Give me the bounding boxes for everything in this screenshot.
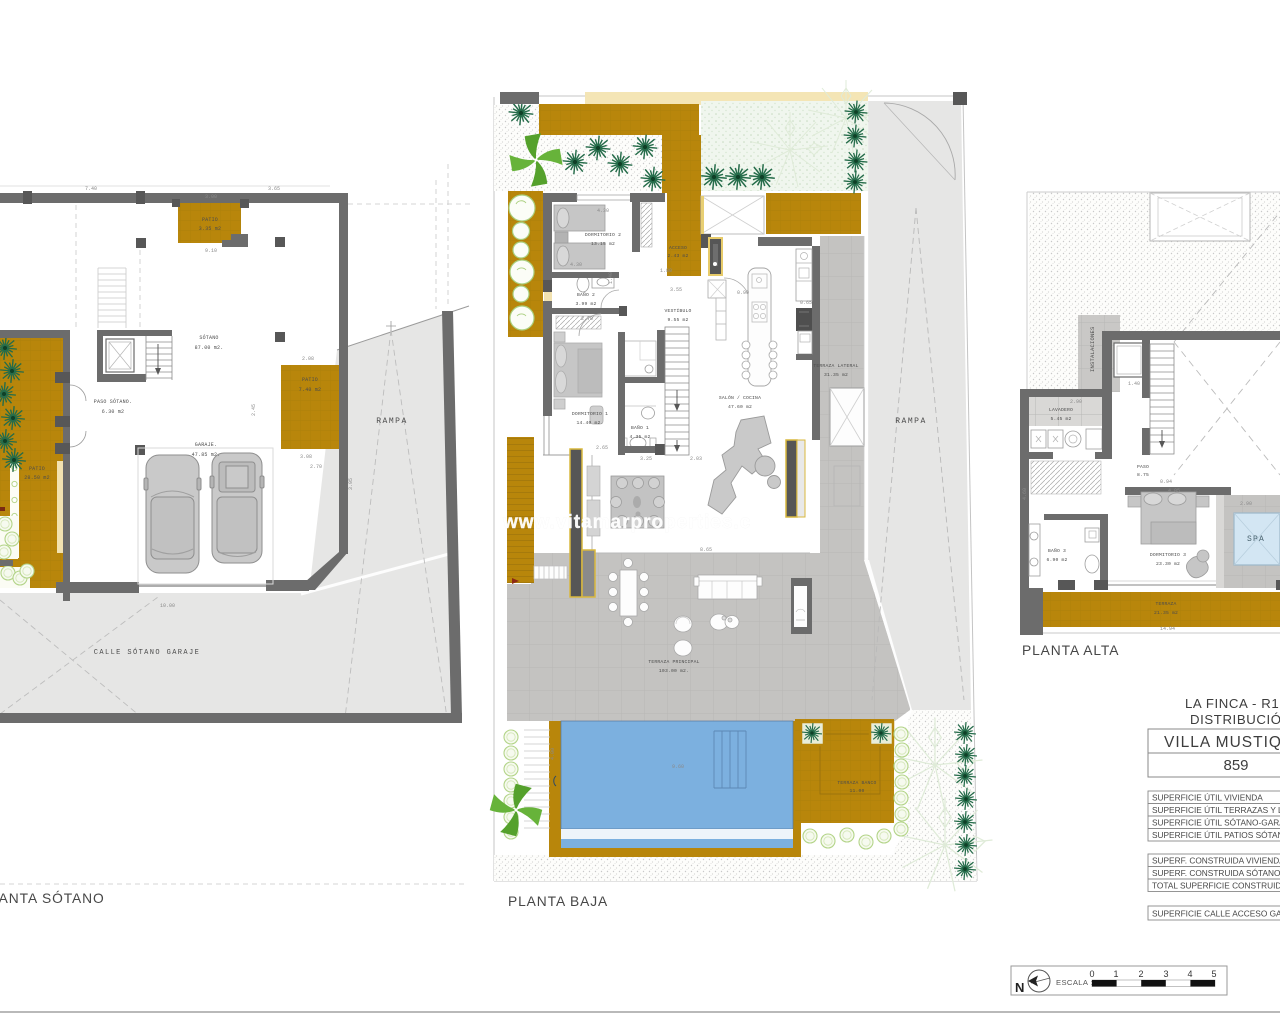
- svg-text:www.vitamarproperties.c: www.vitamarproperties.c: [502, 512, 751, 533]
- svg-text:CALLE SÓTANO GARAJE: CALLE SÓTANO GARAJE: [94, 647, 200, 657]
- svg-text:3.25: 3.25: [640, 456, 652, 462]
- svg-text:2.03: 2.03: [690, 456, 702, 462]
- svg-text:5: 5: [1211, 969, 1216, 979]
- svg-text:3: 3: [1163, 969, 1168, 979]
- svg-text:PASO: PASO: [1137, 464, 1149, 470]
- svg-text:LA FINCA - R1: LA FINCA - R1: [1185, 696, 1279, 711]
- svg-text:4.35 m2: 4.35 m2: [629, 434, 650, 440]
- svg-text:SUPERFICIE ÚTIL PATIOS SÓTANO: SUPERFICIE ÚTIL PATIOS SÓTANO: [1152, 830, 1280, 840]
- svg-text:0.65: 0.65: [800, 300, 812, 306]
- svg-text:RAMPA: RAMPA: [376, 417, 408, 426]
- svg-text:ESCALA :: ESCALA :: [1056, 978, 1093, 987]
- svg-text:6.30 m2: 6.30 m2: [102, 409, 124, 415]
- svg-text:1.40: 1.40: [608, 272, 614, 284]
- svg-text:47.60 m2: 47.60 m2: [728, 404, 752, 410]
- svg-text:SUPERFICIE ÚTIL SÓTANO-GARAJE: SUPERFICIE ÚTIL SÓTANO-GARAJE: [1152, 818, 1280, 828]
- svg-text:28.50 m2: 28.50 m2: [24, 475, 50, 481]
- svg-text:2.70: 2.70: [581, 316, 593, 322]
- svg-text:VESTÍBULO: VESTÍBULO: [664, 307, 691, 314]
- svg-text:5.45 m2: 5.45 m2: [1050, 416, 1071, 422]
- svg-text:GARAJE.: GARAJE.: [195, 442, 217, 448]
- svg-text:2.65: 2.65: [596, 445, 608, 451]
- svg-text:TOTAL SUPERFICIE CONSTRUIDA: TOTAL SUPERFICIE CONSTRUIDA: [1152, 881, 1280, 891]
- svg-text:2.45: 2.45: [251, 404, 257, 416]
- svg-text:RAMPA: RAMPA: [895, 417, 927, 426]
- svg-text:14.40 m2.: 14.40 m2.: [576, 420, 603, 426]
- svg-text:TERRAZA: TERRAZA: [1155, 601, 1176, 607]
- svg-text:21.35 m2: 21.35 m2: [1154, 610, 1178, 616]
- svg-text:0.90: 0.90: [737, 290, 749, 296]
- svg-text:SUPERFICIE ÚTIL TERRAZAS Y LAV: SUPERFICIE ÚTIL TERRAZAS Y LAVADERO: [1152, 805, 1280, 815]
- svg-text:3.00: 3.00: [205, 194, 217, 200]
- svg-text:8.65: 8.65: [700, 547, 712, 553]
- svg-text:BAÑO 1: BAÑO 1: [631, 424, 649, 431]
- svg-text:6.90 m2: 6.90 m2: [1046, 557, 1067, 563]
- svg-text:23.30 m2: 23.30 m2: [1156, 561, 1180, 567]
- svg-text:N: N: [1015, 980, 1024, 995]
- svg-text:ACCESO: ACCESO: [669, 245, 687, 251]
- svg-text:9.10: 9.10: [205, 248, 217, 254]
- svg-text:SUPERFICIE ÚTIL VIVIENDA: SUPERFICIE ÚTIL VIVIENDA: [1152, 793, 1263, 803]
- svg-text:PLANTA ALTA: PLANTA ALTA: [1022, 643, 1119, 658]
- svg-text:10.00: 10.00: [160, 603, 175, 609]
- svg-text:4.30: 4.30: [597, 208, 609, 214]
- svg-text:11.00: 11.00: [849, 788, 864, 794]
- svg-text:PATIO: PATIO: [302, 377, 318, 383]
- svg-text:4.60: 4.60: [1022, 488, 1028, 500]
- svg-text:3.65: 3.65: [268, 186, 280, 192]
- svg-text:TERRAZA PRINCIPAL: TERRAZA PRINCIPAL: [648, 659, 699, 665]
- svg-text:2.43 m2: 2.43 m2: [667, 253, 688, 259]
- svg-text:8.75: 8.75: [1137, 472, 1149, 478]
- svg-text:TERRAZA LATERAL: TERRAZA LATERAL: [813, 363, 858, 369]
- svg-text:PASO SÓTANO.: PASO SÓTANO.: [94, 398, 132, 405]
- svg-text:3.08: 3.08: [300, 454, 312, 460]
- svg-text:BAÑO 2: BAÑO 2: [577, 291, 595, 298]
- svg-text:4: 4: [1187, 969, 1192, 979]
- svg-text:7.40: 7.40: [85, 186, 97, 192]
- svg-text:9.60: 9.60: [672, 764, 684, 770]
- svg-text:2: 2: [1138, 969, 1143, 979]
- svg-text:SUPERFICIE CALLE ACCESO GARAJE: SUPERFICIE CALLE ACCESO GARAJE: [1152, 909, 1280, 919]
- svg-text:9.55 m2: 9.55 m2: [667, 317, 688, 323]
- svg-text:SUPERF. CONSTRUIDA SÓTANO-GARA: SUPERF. CONSTRUIDA SÓTANO-GARAJE: [1152, 868, 1280, 878]
- svg-text:DISTRIBUCIÓN: DISTRIBUCIÓN: [1190, 712, 1280, 727]
- svg-text:2.70: 2.70: [310, 464, 322, 470]
- svg-text:1: 1: [1113, 969, 1118, 979]
- svg-text:4.30: 4.30: [570, 262, 582, 268]
- svg-text:3.99 m2: 3.99 m2: [575, 301, 596, 307]
- svg-text:INSTALACIONES: INSTALACIONES: [1089, 326, 1096, 372]
- svg-text:47.85 m2.: 47.85 m2.: [192, 452, 221, 458]
- svg-text:13.15 m2: 13.15 m2: [591, 241, 615, 247]
- svg-text:PLANTA BAJA: PLANTA BAJA: [508, 894, 608, 909]
- svg-text:LAVADERO: LAVADERO: [1049, 407, 1073, 413]
- svg-text:14.94: 14.94: [1160, 626, 1175, 632]
- svg-text:3.55: 3.55: [670, 287, 682, 293]
- svg-text:PATIO: PATIO: [29, 466, 45, 472]
- svg-text:31.35 m2: 31.35 m2: [824, 372, 848, 378]
- svg-text:87.00 m2.: 87.00 m2.: [195, 345, 224, 351]
- svg-text:4.05: 4.05: [1168, 488, 1180, 494]
- svg-text:0.94: 0.94: [1160, 479, 1172, 485]
- svg-text:SÓTANO: SÓTANO: [199, 334, 218, 341]
- svg-text:VILLA MUSTIQUE: VILLA MUSTIQUE: [1164, 734, 1280, 751]
- svg-text:0: 0: [1089, 969, 1094, 979]
- svg-text:BAÑO 3: BAÑO 3: [1048, 547, 1066, 554]
- svg-text:DORMITORIO 2: DORMITORIO 2: [585, 232, 621, 238]
- svg-text:SUPERF. CONSTRUIDA VIVIENDA: SUPERF. CONSTRUIDA VIVIENDA: [1152, 856, 1280, 866]
- svg-text:859: 859: [1223, 757, 1248, 774]
- svg-text:2.90: 2.90: [1240, 501, 1252, 507]
- svg-text:DORMITORIO 1: DORMITORIO 1: [572, 411, 608, 417]
- svg-text:PLANTA SÓTANO: PLANTA SÓTANO: [0, 890, 105, 906]
- svg-text:SPA: SPA: [1247, 535, 1265, 544]
- svg-text:103.00 m2.: 103.00 m2.: [659, 668, 689, 674]
- svg-text:DORMITORIO 3: DORMITORIO 3: [1150, 552, 1186, 558]
- svg-text:2.90: 2.90: [1070, 399, 1082, 405]
- svg-text:1.80: 1.80: [660, 268, 672, 274]
- svg-text:2.08: 2.08: [302, 356, 314, 362]
- svg-text:4.00: 4.00: [550, 748, 556, 760]
- svg-text:3.95: 3.95: [348, 478, 354, 490]
- svg-text:3.35 m2: 3.35 m2: [199, 226, 221, 232]
- svg-text:7.40 m2: 7.40 m2: [299, 387, 321, 393]
- svg-text:SALÓN / COCINA: SALÓN / COCINA: [719, 394, 761, 401]
- svg-text:TERRAZA BANCO: TERRAZA BANCO: [837, 780, 876, 786]
- svg-text:PATIO: PATIO: [202, 217, 218, 223]
- svg-text:1.40: 1.40: [1128, 381, 1140, 387]
